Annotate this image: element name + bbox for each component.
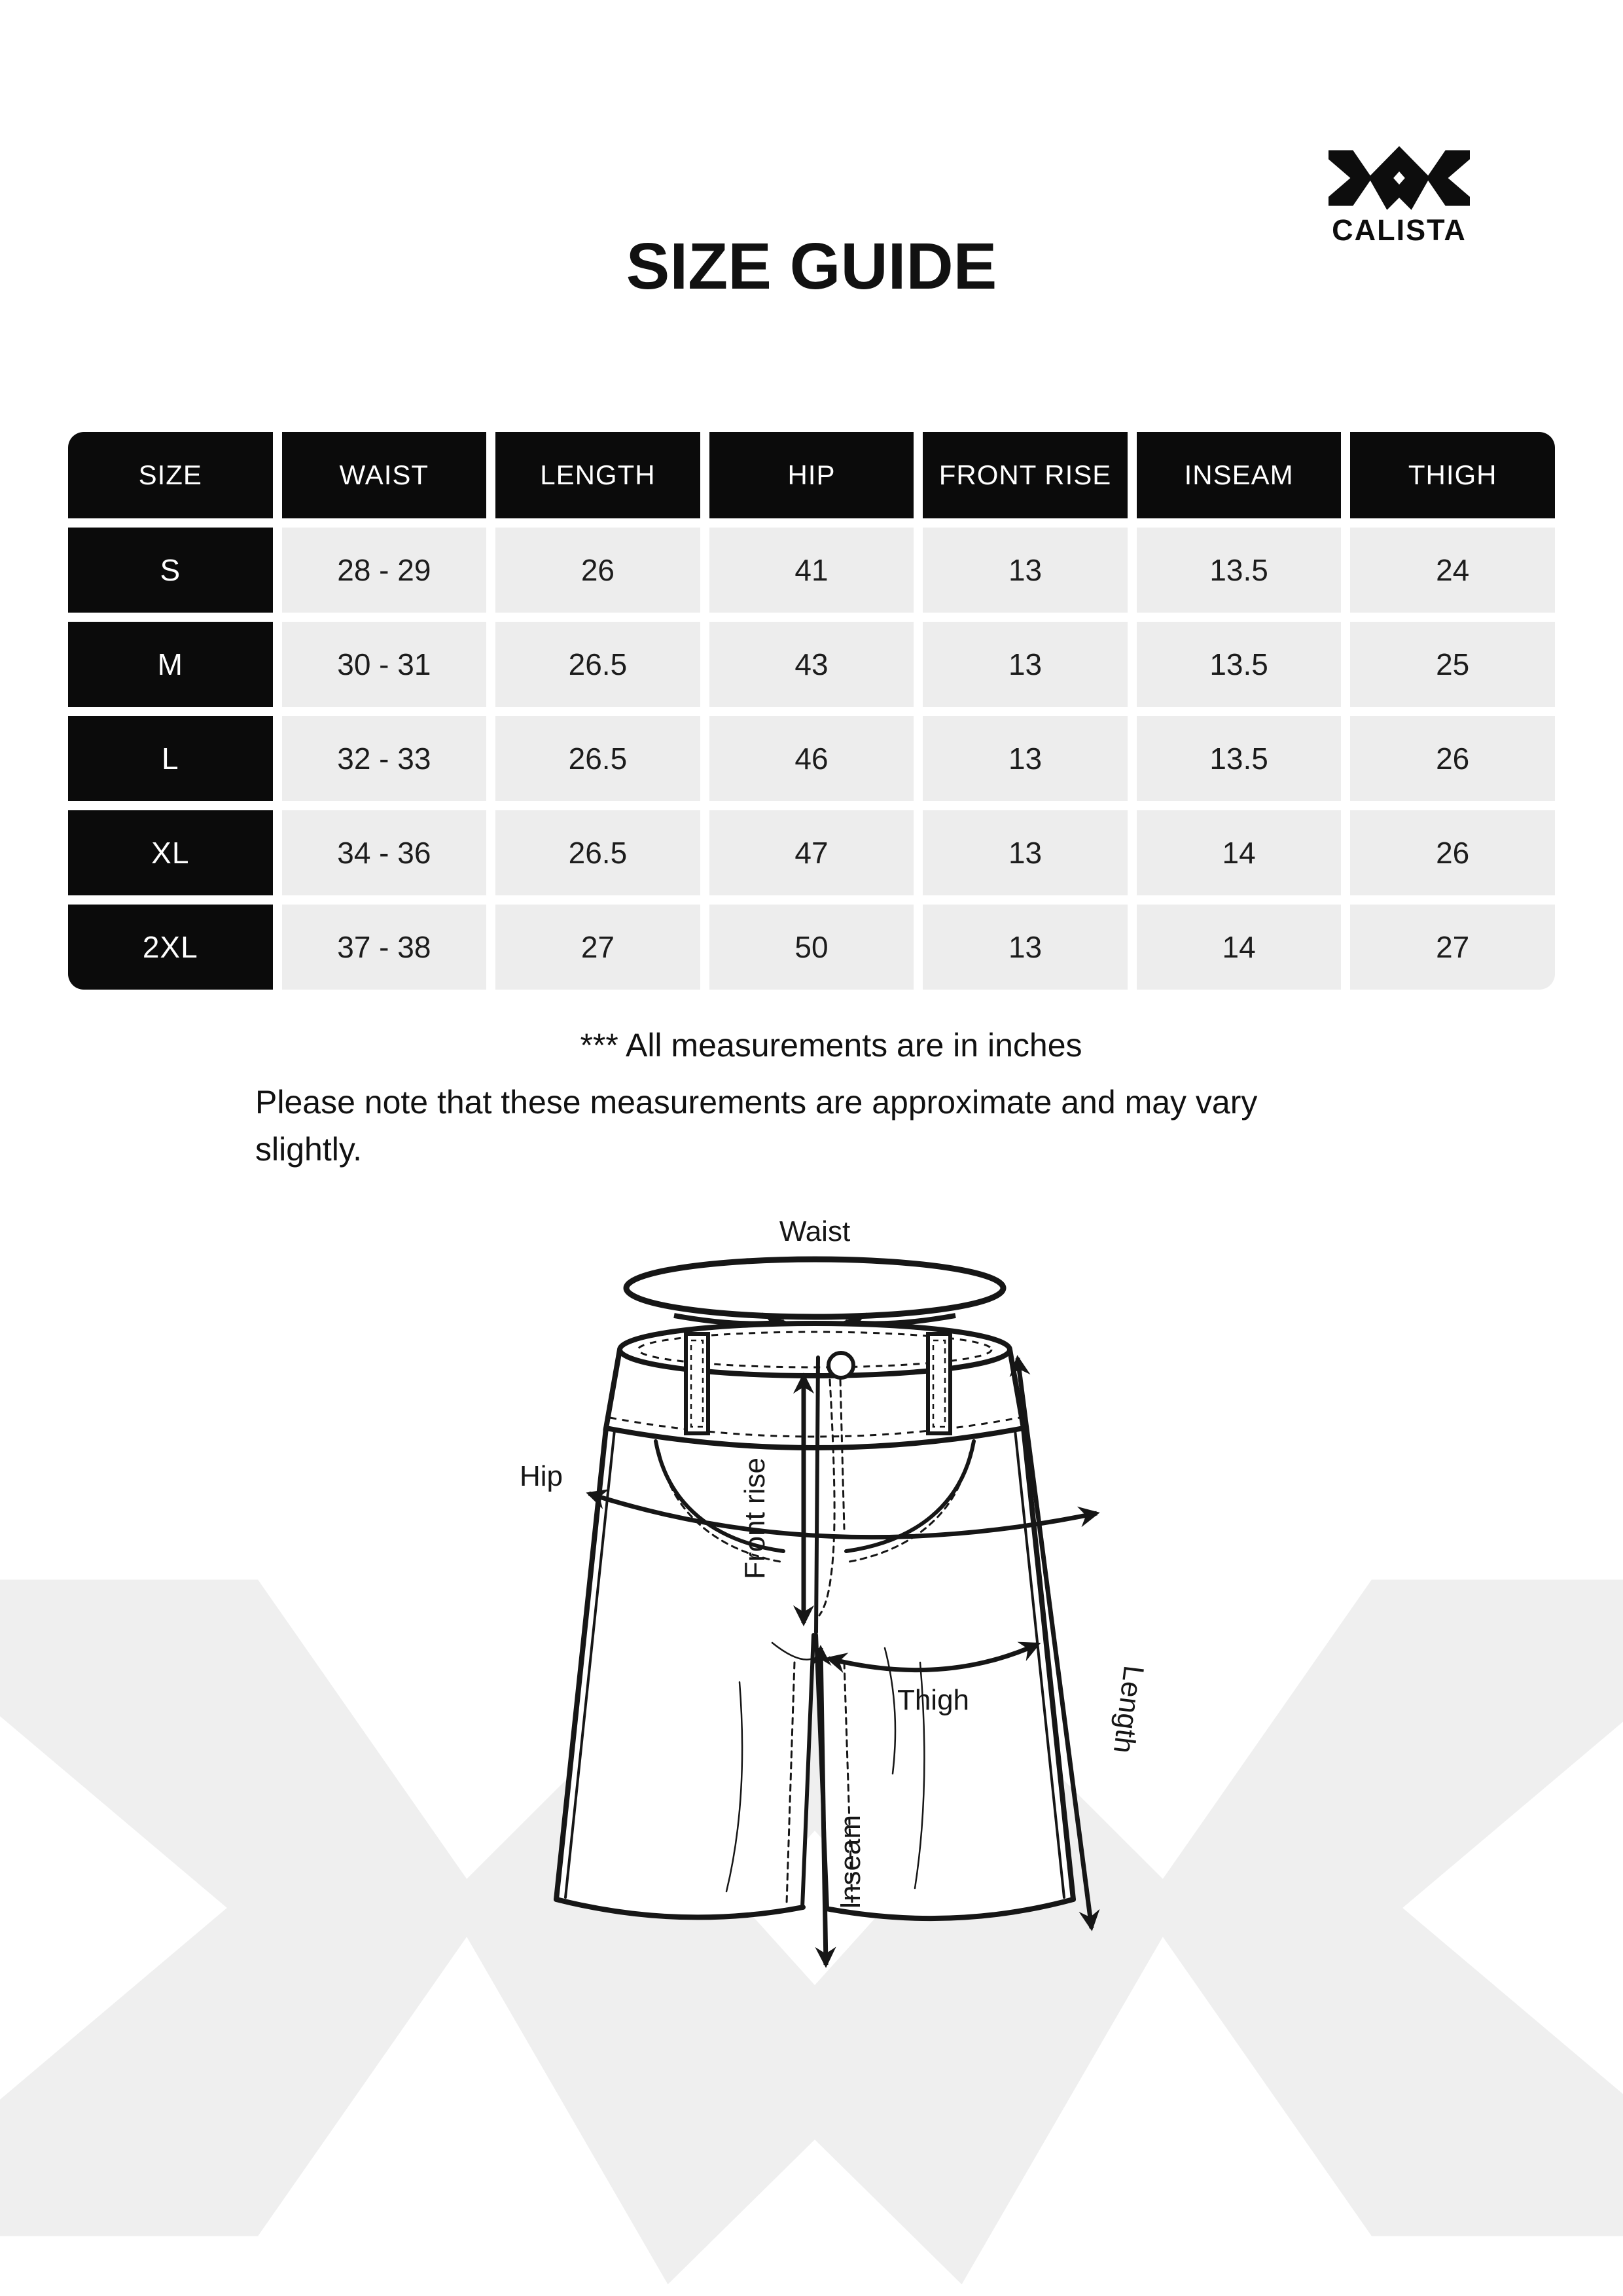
waist-label: Waist: [779, 1215, 850, 1247]
size-table-body: S28 - 2926411313.524M30 - 3126.5431313.5…: [68, 528, 1555, 990]
waist-measure: [626, 1259, 1003, 1323]
column-header-length: LENGTH: [495, 432, 700, 518]
column-header-inseam: INSEAM: [1137, 432, 1342, 518]
brand-name: CALISTA: [1327, 213, 1471, 247]
measurement-cell: 34 - 36: [282, 810, 487, 895]
measurement-cell: 32 - 33: [282, 716, 487, 801]
column-header-size: SIZE: [68, 432, 273, 518]
measurement-cell: 13.5: [1137, 622, 1342, 707]
inseam-label: Inseam: [834, 1815, 866, 1909]
measurement-cell: 26.5: [495, 810, 700, 895]
table-row-s: S28 - 2926411313.524: [68, 528, 1555, 613]
note-disclaimer-line1: Please note that these measurements are …: [255, 1079, 1427, 1126]
measurement-cell: 28 - 29: [282, 528, 487, 613]
measurement-cell: 26: [1350, 716, 1555, 801]
column-header-hip: HIP: [709, 432, 914, 518]
measurement-cell: 25: [1350, 622, 1555, 707]
note-units: *** All measurements are in inches: [255, 1026, 1407, 1064]
measurement-cell: 13: [923, 905, 1128, 990]
table-row-l: L32 - 3326.5461313.526: [68, 716, 1555, 801]
measurement-cell: 24: [1350, 528, 1555, 613]
measurement-cell: 13: [923, 622, 1128, 707]
front-rise-label: Front rise: [739, 1458, 771, 1579]
measurement-cell: 41: [709, 528, 914, 613]
measurement-cell: 46: [709, 716, 914, 801]
measurement-cell: 26: [1350, 810, 1555, 895]
hip-label: Hip: [520, 1460, 563, 1492]
size-table-header-row: SIZEWAISTLENGTHHIPFRONT RISEINSEAMTHIGH: [68, 432, 1555, 518]
measurement-cell: 47: [709, 810, 914, 895]
thigh-label: Thigh: [897, 1684, 969, 1716]
brand-logo: CALISTA: [1327, 145, 1471, 247]
measurement-cell: 14: [1137, 810, 1342, 895]
column-header-thigh: THIGH: [1350, 432, 1555, 518]
button: [829, 1353, 853, 1378]
measurement-cell: 27: [1350, 905, 1555, 990]
measurement-cell: 26: [495, 528, 700, 613]
measurement-cell: 13.5: [1137, 528, 1342, 613]
note-disclaimer-line2: slightly.: [255, 1126, 1427, 1173]
size-table-wrap: SIZEWAISTLENGTHHIPFRONT RISEINSEAMTHIGH …: [59, 423, 1564, 999]
size-cell: 2XL: [68, 905, 273, 990]
size-table: SIZEWAISTLENGTHHIPFRONT RISEINSEAMTHIGH …: [59, 423, 1564, 999]
measurement-cell: 30 - 31: [282, 622, 487, 707]
table-row-2xl: 2XL37 - 382750131427: [68, 905, 1555, 990]
measurement-cell: 26.5: [495, 622, 700, 707]
column-header-waist: WAIST: [282, 432, 487, 518]
size-cell: S: [68, 528, 273, 613]
length-label: Length: [1107, 1664, 1150, 1755]
measurement-cell: 37 - 38: [282, 905, 487, 990]
note-disclaimer: Please note that these measurements are …: [255, 1079, 1427, 1173]
size-guide-page: { "page": { "title": "SIZE GUIDE" }, "br…: [0, 0, 1623, 2296]
measurement-cell: 43: [709, 622, 914, 707]
measurement-cell: 27: [495, 905, 700, 990]
measurement-cell: 14: [1137, 905, 1342, 990]
shorts-diagram: Waist Front rise Hip Thigh Length Inseam: [458, 1211, 1178, 2003]
measurement-cell: 26.5: [495, 716, 700, 801]
measurement-cell: 50: [709, 905, 914, 990]
measurement-cell: 13.5: [1137, 716, 1342, 801]
measurement-cell: 13: [923, 716, 1128, 801]
size-cell: XL: [68, 810, 273, 895]
size-cell: L: [68, 716, 273, 801]
column-header-front-rise: FRONT RISE: [923, 432, 1128, 518]
measurement-cell: 13: [923, 528, 1128, 613]
waistband: [606, 1323, 1024, 1448]
table-row-xl: XL34 - 3626.547131426: [68, 810, 1555, 895]
table-row-m: M30 - 3126.5431313.525: [68, 622, 1555, 707]
measurement-cell: 13: [923, 810, 1128, 895]
double-x-logo-icon: [1329, 145, 1470, 211]
size-cell: M: [68, 622, 273, 707]
size-table-head: SIZEWAISTLENGTHHIPFRONT RISEINSEAMTHIGH: [68, 432, 1555, 518]
